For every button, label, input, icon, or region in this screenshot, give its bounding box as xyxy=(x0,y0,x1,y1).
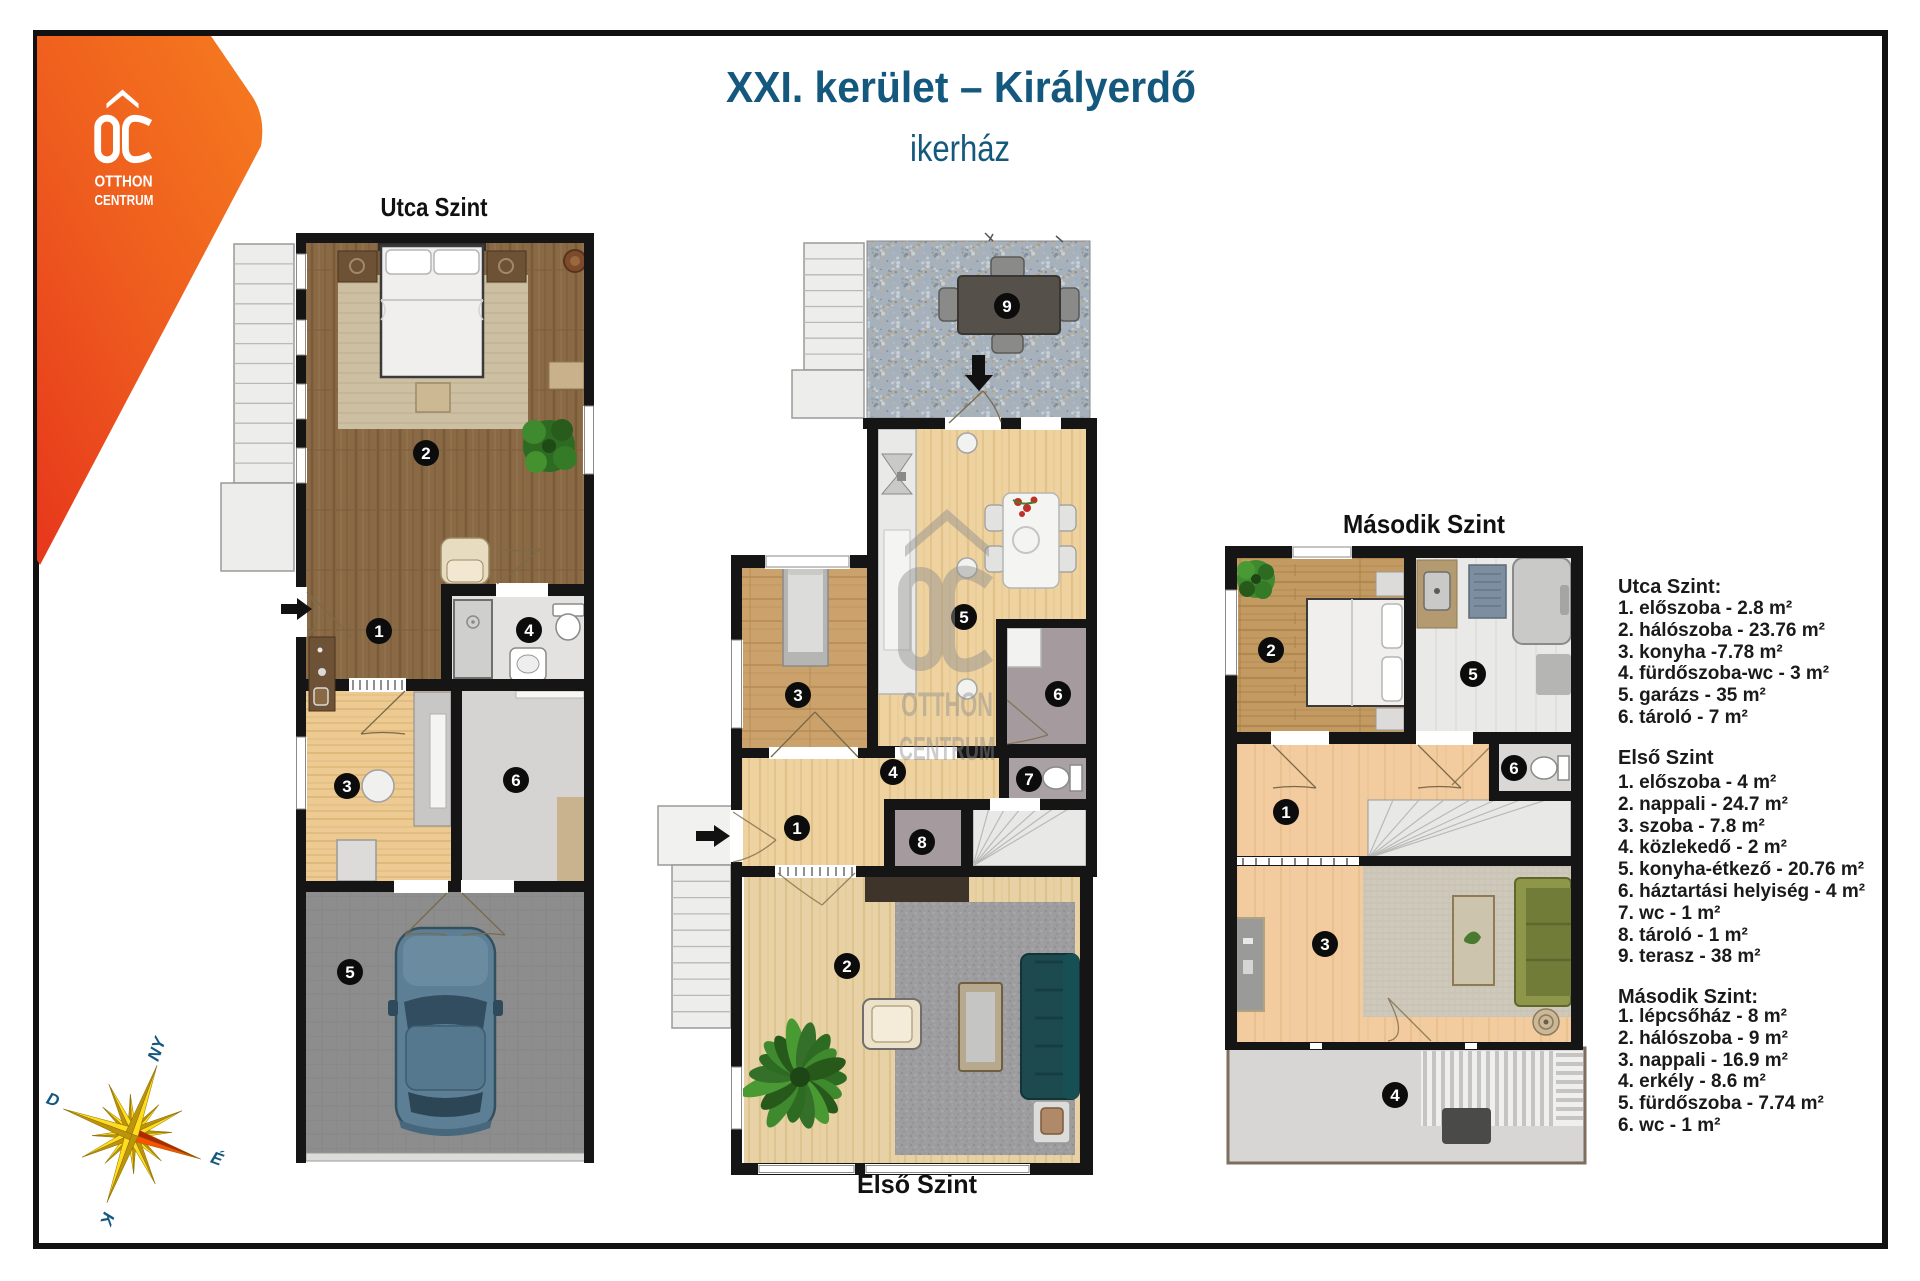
svg-text:CENTRUM: CENTRUM xyxy=(95,192,154,209)
svg-text:3: 3 xyxy=(1320,935,1329,954)
svg-text:1. előszoba - 2.8 m²: 1. előszoba - 2.8 m² xyxy=(1618,598,1792,619)
svg-text:5. konyha-étkező - 20.76 m²: 5. konyha-étkező - 20.76 m² xyxy=(1618,859,1864,880)
svg-text:8: 8 xyxy=(917,833,926,852)
svg-text:5: 5 xyxy=(1468,665,1477,684)
svg-text:1: 1 xyxy=(1281,803,1290,822)
svg-text:2: 2 xyxy=(842,957,851,976)
svg-text:7: 7 xyxy=(1024,770,1033,789)
svg-text:ikerház: ikerház xyxy=(910,128,1010,169)
svg-text:1. előszoba - 4 m²: 1. előszoba - 4 m² xyxy=(1618,772,1776,793)
svg-text:9. terasz - 38 m²: 9. terasz - 38 m² xyxy=(1618,946,1761,967)
svg-text:OTTHON: OTTHON xyxy=(95,174,153,191)
svg-text:3. nappali - 16.9 m²: 3. nappali - 16.9 m² xyxy=(1618,1050,1788,1071)
svg-text:Utca Szint:: Utca Szint: xyxy=(1618,576,1721,598)
svg-text:6. wc - 1 m²: 6. wc - 1 m² xyxy=(1618,1115,1720,1136)
svg-text:6. háztartási helyiség - 4 m²: 6. háztartási helyiség - 4 m² xyxy=(1618,881,1865,902)
svg-text:2. hálószoba - 23.76 m²: 2. hálószoba - 23.76 m² xyxy=(1618,620,1825,641)
svg-text:2. nappali - 24.7 m²: 2. nappali - 24.7 m² xyxy=(1618,794,1788,815)
svg-text:4. erkély - 8.6 m²: 4. erkély - 8.6 m² xyxy=(1618,1071,1766,1092)
svg-text:6: 6 xyxy=(1053,685,1062,704)
svg-text:5. fürdőszoba - 7.74 m²: 5. fürdőszoba - 7.74 m² xyxy=(1618,1093,1824,1114)
svg-text:7. wc - 1 m²: 7. wc - 1 m² xyxy=(1618,903,1720,924)
svg-text:9: 9 xyxy=(1002,297,1011,316)
svg-text:3: 3 xyxy=(793,686,802,705)
svg-text:Utca Szint: Utca Szint xyxy=(381,192,488,222)
svg-text:Második Szint: Második Szint xyxy=(1343,509,1505,539)
svg-text:4. közlekedő - 2 m²: 4. közlekedő - 2 m² xyxy=(1618,837,1787,858)
svg-text:2. hálószoba - 9 m²: 2. hálószoba - 9 m² xyxy=(1618,1028,1788,1049)
svg-text:Első Szint: Első Szint xyxy=(1618,747,1714,769)
svg-text:8. tároló - 1 m²: 8. tároló - 1 m² xyxy=(1618,925,1748,946)
svg-text:XXI. kerület – Királyerdő: XXI. kerület – Királyerdő xyxy=(726,63,1196,112)
svg-text:6. tároló - 7 m²: 6. tároló - 7 m² xyxy=(1618,707,1748,728)
svg-text:3. konyha -7.78 m²: 3. konyha -7.78 m² xyxy=(1618,642,1783,663)
svg-text:OTTHON: OTTHON xyxy=(901,686,993,724)
svg-text:6: 6 xyxy=(1509,759,1518,778)
svg-text:CENTRUM: CENTRUM xyxy=(899,730,995,767)
svg-text:3. szoba - 7.8 m²: 3. szoba - 7.8 m² xyxy=(1618,816,1765,837)
svg-text:5: 5 xyxy=(345,963,354,982)
svg-text:4. fürdőszoba-wc - 3 m²: 4. fürdőszoba-wc - 3 m² xyxy=(1618,663,1829,684)
svg-text:5. garázs - 35 m²: 5. garázs - 35 m² xyxy=(1618,685,1766,706)
svg-text:5: 5 xyxy=(959,608,968,627)
svg-text:3: 3 xyxy=(342,777,351,796)
svg-text:4: 4 xyxy=(524,621,534,640)
svg-text:2: 2 xyxy=(421,444,430,463)
svg-text:4: 4 xyxy=(888,763,898,782)
svg-text:2: 2 xyxy=(1266,641,1275,660)
svg-text:1: 1 xyxy=(374,622,383,641)
svg-text:4: 4 xyxy=(1390,1086,1400,1105)
svg-text:1: 1 xyxy=(792,819,801,838)
svg-text:Második Szint:: Második Szint: xyxy=(1618,986,1758,1008)
svg-text:1. lépcsőház - 8 m²: 1. lépcsőház - 8 m² xyxy=(1618,1006,1787,1027)
svg-text:6: 6 xyxy=(511,771,520,790)
